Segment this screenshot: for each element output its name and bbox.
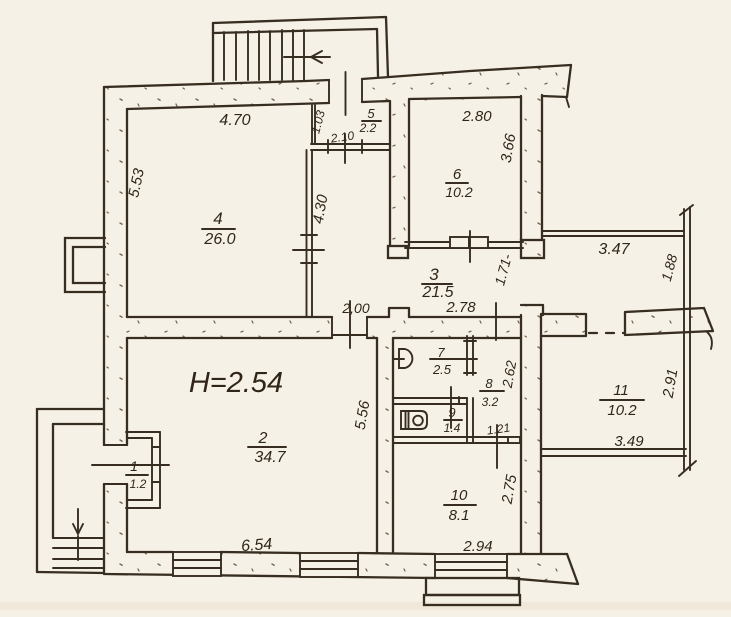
svg-text:3.49: 3.49 <box>614 433 644 450</box>
svg-text:1.2: 1.2 <box>130 477 147 491</box>
svg-text:2.80: 2.80 <box>461 108 492 125</box>
svg-text:10: 10 <box>451 487 468 504</box>
svg-text:5: 5 <box>367 106 375 121</box>
svg-text:9: 9 <box>448 405 455 420</box>
svg-text:2,00: 2,00 <box>341 300 369 316</box>
svg-text:3.2: 3.2 <box>482 395 499 409</box>
svg-text:8: 8 <box>485 376 493 391</box>
svg-text:6: 6 <box>453 166 462 183</box>
svg-text:4: 4 <box>213 209 222 228</box>
svg-text:2.78: 2.78 <box>445 299 476 316</box>
svg-text:6.54: 6.54 <box>241 536 273 555</box>
svg-text:2: 2 <box>258 430 268 447</box>
svg-text:26.0: 26.0 <box>203 231 235 248</box>
svg-text:7: 7 <box>437 345 445 360</box>
svg-text:34.7: 34.7 <box>254 449 286 466</box>
svg-text:1.4: 1.4 <box>444 421 461 435</box>
svg-text:10.2: 10.2 <box>445 184 472 200</box>
svg-text:11: 11 <box>613 382 629 399</box>
svg-text:4.70: 4.70 <box>219 112 250 129</box>
svg-text:3: 3 <box>429 265 439 284</box>
svg-text:2.94: 2.94 <box>462 538 492 555</box>
svg-text:8.1: 8.1 <box>449 507 470 524</box>
svg-text:2.2: 2.2 <box>359 121 377 135</box>
svg-text:1: 1 <box>130 458 138 474</box>
svg-text:H=2.54: H=2.54 <box>189 367 283 399</box>
svg-text:3.47: 3.47 <box>598 241 630 258</box>
svg-text:10.2: 10.2 <box>607 402 637 419</box>
svg-text:2.5: 2.5 <box>432 362 452 377</box>
